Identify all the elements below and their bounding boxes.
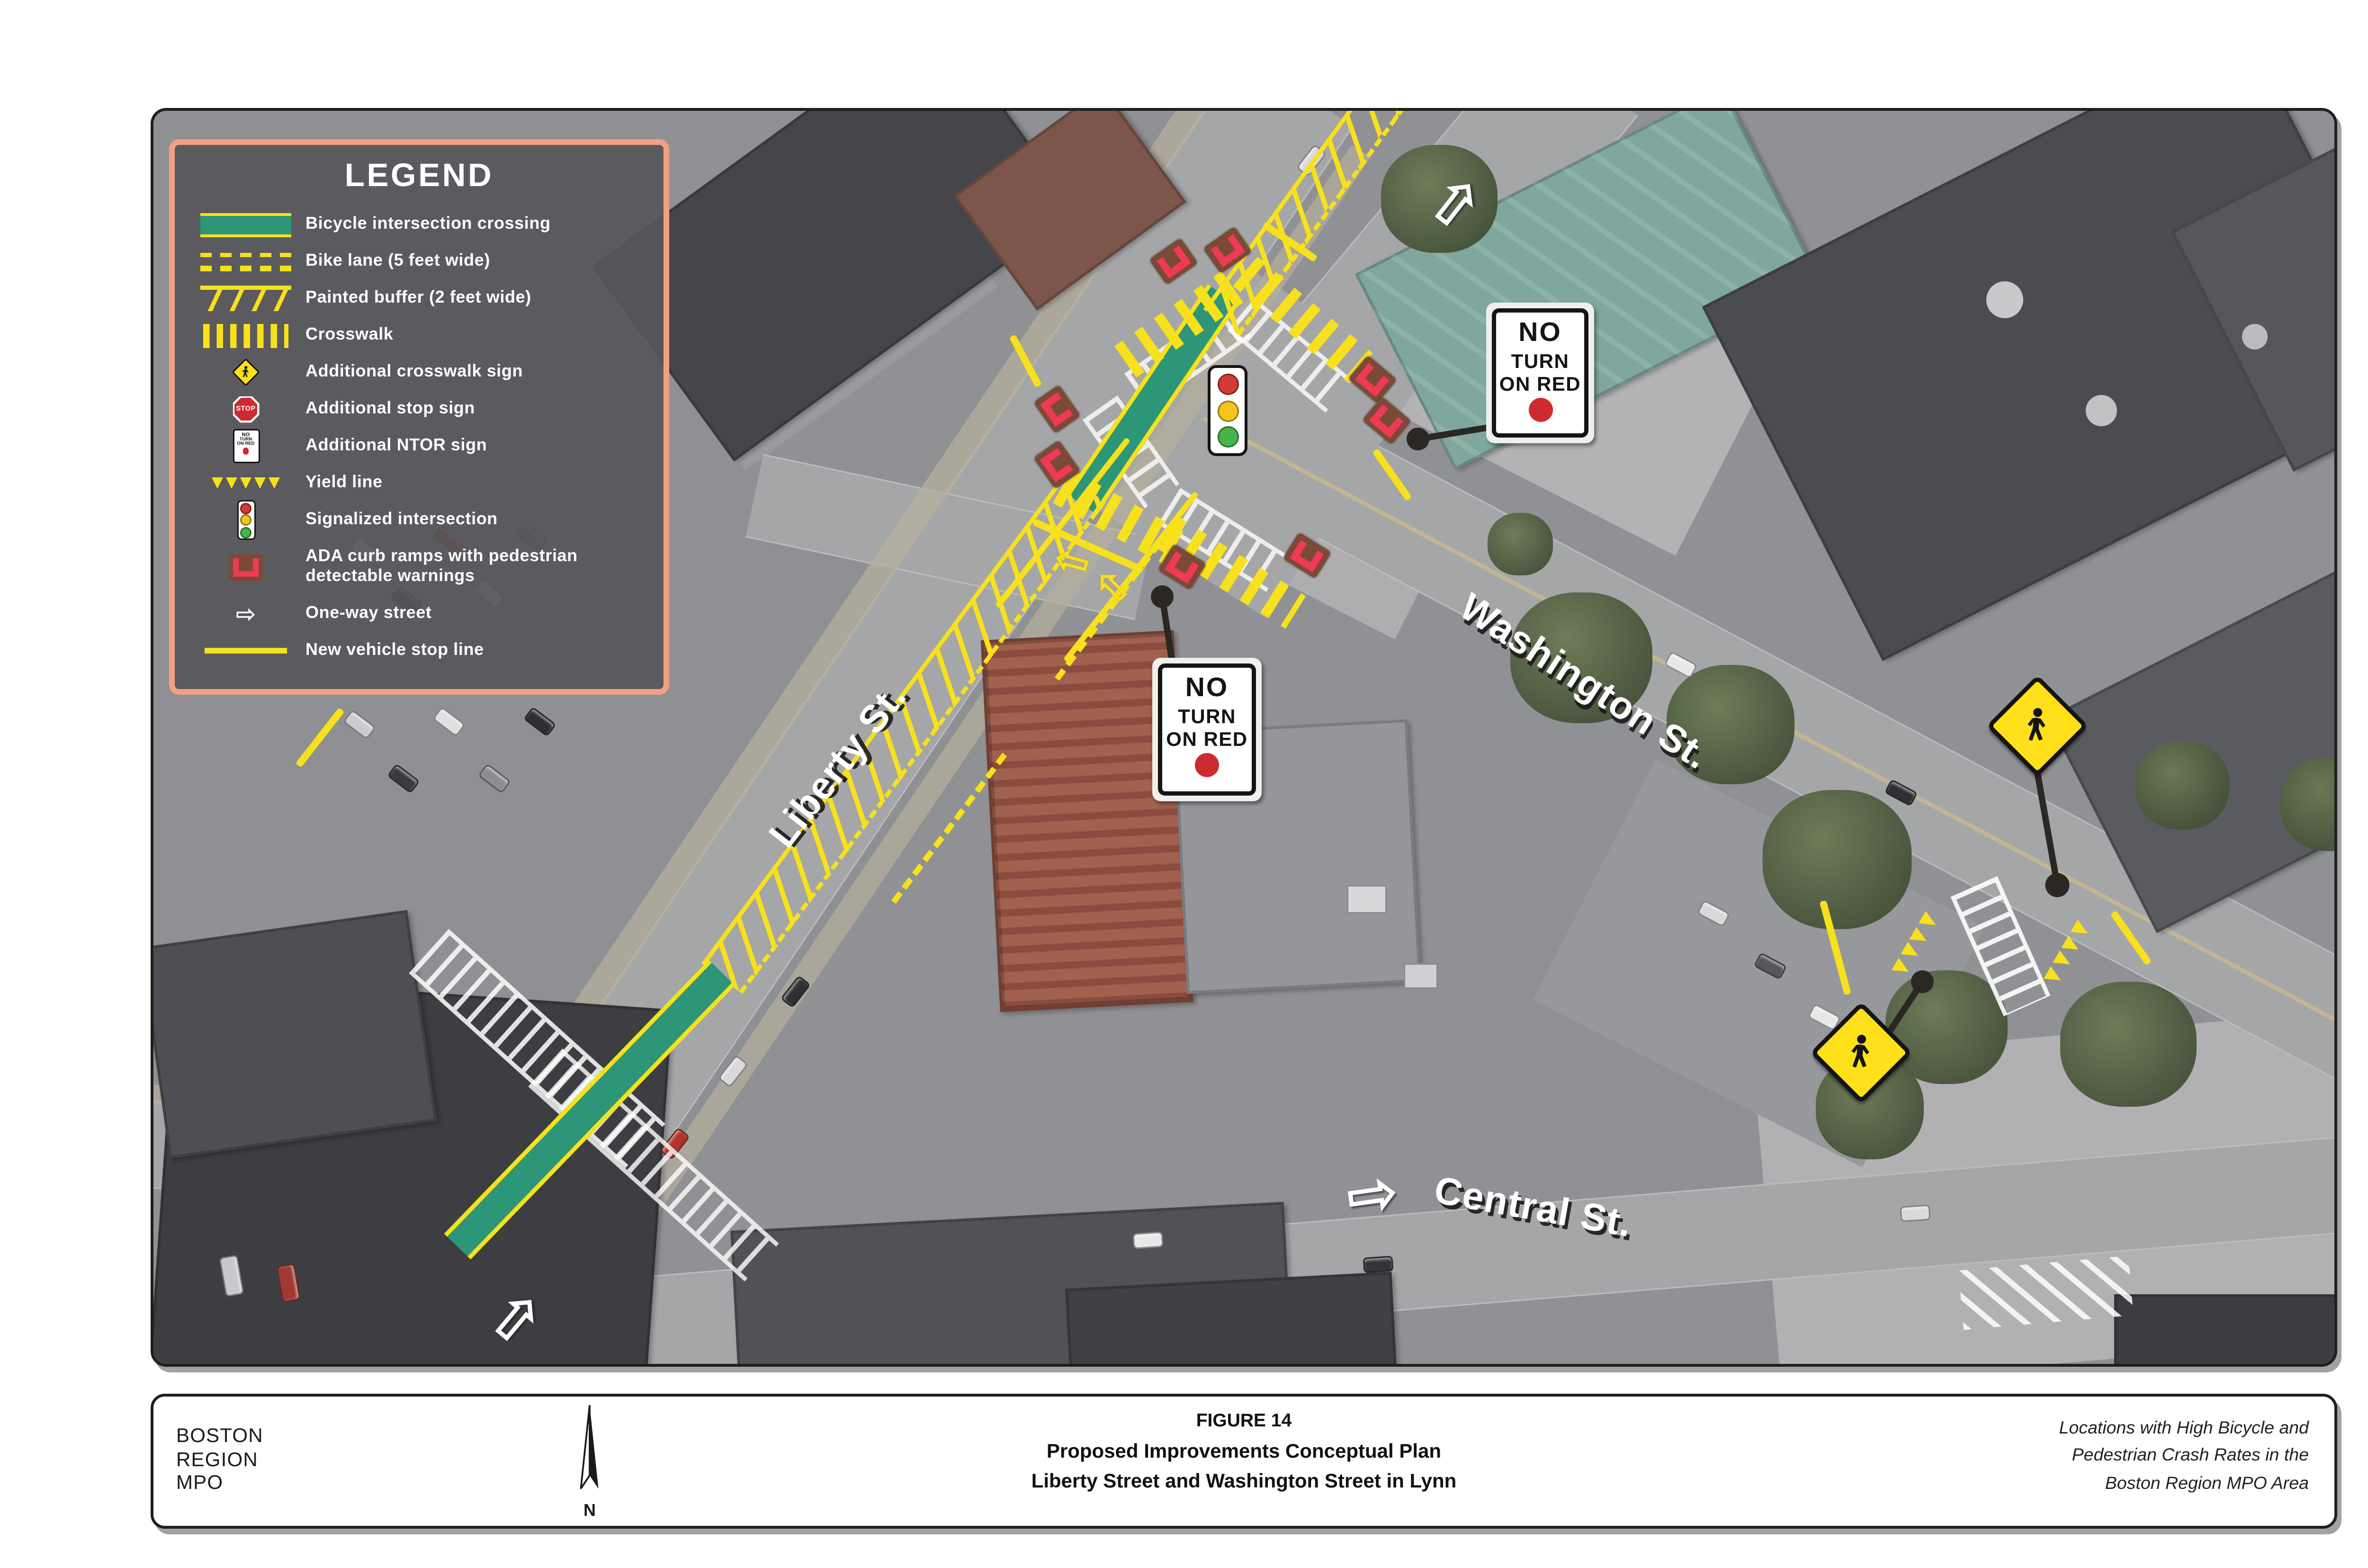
- signal-green-light: [1217, 427, 1238, 448]
- stop-line-swatch: [205, 647, 287, 654]
- legend-label: One-way street: [305, 604, 432, 623]
- figure-page: ⇧ ⇧ ⇨ ⇨ ⇨: [0, 0, 2368, 1568]
- ntor-line3: ON RED: [1162, 727, 1252, 750]
- aerial-map-panel: ⇧ ⇧ ⇨ ⇨ ⇨: [151, 108, 2337, 1367]
- legend-row: NO TURN ON RED Additional NTOR sign: [186, 428, 652, 465]
- legend-label: ADA curb ramps with pedestrian detectabl…: [305, 547, 578, 587]
- ntor-sign-icon: NO TURN ON RED: [233, 429, 260, 463]
- figure-number: FIGURE 14: [153, 1409, 2334, 1431]
- legend-label: Crosswalk: [305, 325, 394, 345]
- legend-row: Crosswalk: [186, 317, 652, 354]
- legend-label: New vehicle stop line: [305, 641, 484, 660]
- legend-panel: LEGEND Bicycle intersection crossing Bik…: [169, 139, 669, 695]
- legend-row: Bike lane (5 feet wide): [186, 243, 652, 280]
- red-circle-icon: [242, 448, 249, 455]
- ntor-line3: ON RED: [1496, 372, 1584, 395]
- study-note: Locations with High Bicycle and Pedestri…: [2059, 1415, 2309, 1497]
- ntor-line1: NO: [1162, 673, 1252, 705]
- legend-row: ADA curb ramps with pedestrian detectabl…: [186, 538, 652, 595]
- legend-label: Painted buffer (2 feet wide): [305, 288, 531, 308]
- yield-line-swatch: [212, 477, 280, 489]
- pedestrian-crossing-sign: [1814, 1006, 1908, 1100]
- pedestrian-crossing-sign: [1991, 679, 2084, 773]
- ntor-sign-face: NO TURN ON RED: [1492, 308, 1588, 438]
- signal-amber-light: [1217, 400, 1238, 421]
- legend-label: Additional NTOR sign: [305, 436, 487, 456]
- ntor-sign: NO TURN ON RED: [1152, 658, 1262, 801]
- stop-sign-text: STOP: [234, 398, 257, 421]
- figure-title-line2: Liberty Street and Washington Street in …: [153, 1469, 2334, 1492]
- ntor-line2: TURN: [1162, 705, 1252, 727]
- legend-label: Bicycle intersection crossing: [305, 215, 551, 234]
- ntor-line1: NO: [1496, 318, 1584, 349]
- ntor-sign: NO TURN ON RED: [1486, 303, 1594, 443]
- legend-label: Signalized intersection: [305, 510, 498, 529]
- legend-row: New vehicle stop line: [186, 632, 652, 669]
- bike-lane-swatch: [200, 252, 291, 271]
- ntor-sign-face: NO TURN ON RED: [1158, 663, 1256, 796]
- painted-buffer-swatch: [200, 286, 291, 311]
- legend-label: Additional crosswalk sign: [305, 362, 523, 382]
- legend-label: Yield line: [305, 473, 383, 493]
- pedestrian-icon: [2019, 706, 2056, 747]
- legend-label: Bike lane (5 feet wide): [305, 251, 490, 271]
- legend-row: Painted buffer (2 feet wide): [186, 280, 652, 317]
- stop-sign-icon: STOP: [233, 396, 260, 423]
- legend-label: Additional stop sign: [305, 399, 475, 419]
- figure-titles: FIGURE 14 Proposed Improvements Conceptu…: [153, 1409, 2334, 1499]
- legend-row: Bicycle intersection crossing: [186, 206, 652, 243]
- signal-icon: [237, 500, 255, 540]
- title-block: BOSTON REGION MPO N FIGURE 14 Proposed I…: [151, 1394, 2337, 1529]
- signal-red-light: [1217, 373, 1238, 394]
- legend-row: ⇨ One-way street: [186, 595, 652, 632]
- legend-row: STOP Additional stop sign: [186, 391, 652, 428]
- legend-title: LEGEND: [186, 156, 652, 195]
- traffic-signal-icon: [1208, 365, 1247, 456]
- ada-ramp-icon: [229, 554, 263, 581]
- bicycle-crossing-swatch: [200, 213, 291, 237]
- legend-row: Yield line: [186, 465, 652, 502]
- legend-row: Additional crosswalk sign: [186, 354, 652, 391]
- ntor-line2: TURN: [1496, 349, 1584, 372]
- red-circle-icon: [1195, 753, 1219, 777]
- legend-row: Signalized intersection: [186, 502, 652, 538]
- red-circle-icon: [1528, 398, 1552, 422]
- pedestrian-icon: [1843, 1032, 1880, 1074]
- crosswalk-swatch: [203, 323, 288, 348]
- figure-title-line1: Proposed Improvements Conceptual Plan: [153, 1439, 2334, 1462]
- north-label: N: [568, 1500, 611, 1520]
- pedestrian-icon: [240, 365, 252, 379]
- one-way-icon: ⇨: [236, 602, 256, 626]
- crosswalk-sign-icon: [234, 361, 257, 384]
